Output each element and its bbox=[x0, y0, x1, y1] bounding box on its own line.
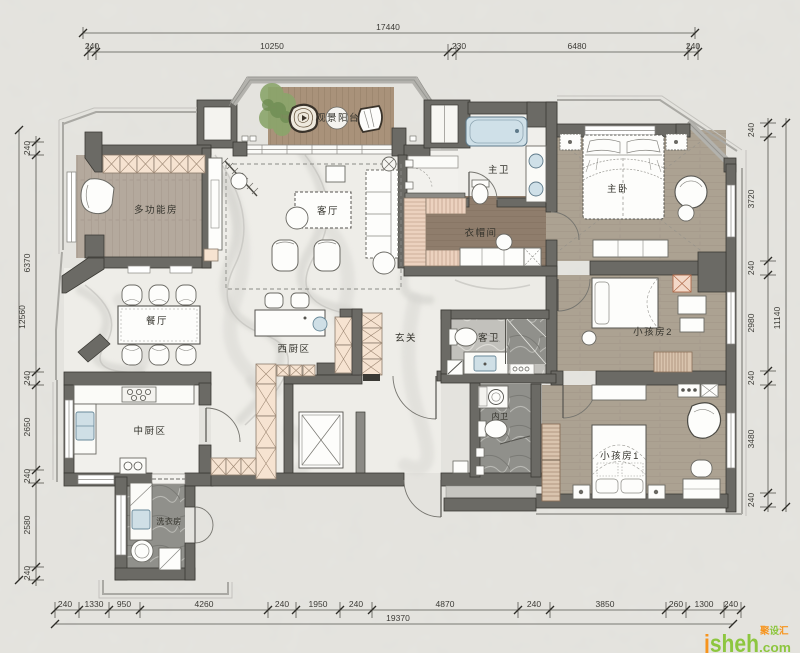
svg-text:240: 240 bbox=[527, 599, 541, 609]
svg-text:240: 240 bbox=[724, 599, 738, 609]
svg-text:240: 240 bbox=[275, 599, 289, 609]
svg-text:1950: 1950 bbox=[309, 599, 328, 609]
svg-text:240: 240 bbox=[85, 41, 99, 51]
svg-text:1300: 1300 bbox=[695, 599, 714, 609]
svg-text:6370: 6370 bbox=[22, 253, 32, 272]
svg-text:洗衣房: 洗衣房 bbox=[156, 516, 182, 526]
svg-text:小孩房1: 小孩房1 bbox=[600, 450, 640, 462]
svg-text:240: 240 bbox=[58, 599, 72, 609]
svg-text:17440: 17440 bbox=[376, 22, 400, 32]
svg-text:4260: 4260 bbox=[195, 599, 214, 609]
svg-text:西厨区: 西厨区 bbox=[277, 344, 310, 355]
svg-text:240: 240 bbox=[349, 599, 363, 609]
svg-text:聚设汇: 聚设汇 bbox=[759, 625, 789, 637]
svg-text:2580: 2580 bbox=[22, 515, 32, 534]
svg-text:主卫: 主卫 bbox=[488, 164, 510, 176]
svg-text:19370: 19370 bbox=[386, 613, 410, 623]
svg-text:10250: 10250 bbox=[260, 41, 284, 51]
svg-text:餐厅: 餐厅 bbox=[146, 315, 168, 327]
svg-text:260: 260 bbox=[669, 599, 683, 609]
svg-text:客卫: 客卫 bbox=[478, 332, 500, 344]
svg-text:240: 240 bbox=[22, 469, 32, 483]
svg-text:4870: 4870 bbox=[436, 599, 455, 609]
svg-text:240: 240 bbox=[686, 41, 700, 51]
svg-text:内卫: 内卫 bbox=[492, 411, 509, 421]
svg-text:.com: .com bbox=[759, 640, 791, 653]
svg-text:中厨区: 中厨区 bbox=[133, 425, 166, 437]
svg-text:2980: 2980 bbox=[746, 313, 756, 332]
svg-text:6480: 6480 bbox=[568, 41, 587, 51]
svg-text:240: 240 bbox=[746, 261, 756, 275]
svg-text:客厅: 客厅 bbox=[317, 205, 339, 217]
svg-text:jsheh: jsheh bbox=[703, 630, 759, 653]
svg-text:2650: 2650 bbox=[22, 417, 32, 436]
svg-text:230: 230 bbox=[452, 41, 466, 51]
svg-text:3850: 3850 bbox=[596, 599, 615, 609]
svg-text:240: 240 bbox=[22, 141, 32, 155]
svg-text:240: 240 bbox=[746, 123, 756, 137]
svg-text:950: 950 bbox=[117, 599, 131, 609]
svg-text:240: 240 bbox=[22, 371, 32, 385]
svg-text:多功能房: 多功能房 bbox=[134, 204, 178, 216]
svg-text:240: 240 bbox=[22, 566, 32, 580]
svg-text:12560: 12560 bbox=[17, 305, 27, 329]
svg-text:小孩房2: 小孩房2 bbox=[633, 326, 673, 338]
svg-text:11140: 11140 bbox=[772, 307, 782, 330]
svg-text:3480: 3480 bbox=[746, 429, 756, 448]
svg-text:240: 240 bbox=[746, 371, 756, 385]
svg-text:玄关: 玄关 bbox=[395, 332, 417, 344]
svg-text:1330: 1330 bbox=[85, 599, 104, 609]
svg-text:观景阳台: 观景阳台 bbox=[316, 112, 360, 124]
svg-text:3720: 3720 bbox=[746, 189, 756, 208]
svg-text:240: 240 bbox=[746, 493, 756, 507]
svg-text:主卧: 主卧 bbox=[607, 183, 629, 195]
svg-text:衣帽间: 衣帽间 bbox=[464, 227, 497, 239]
